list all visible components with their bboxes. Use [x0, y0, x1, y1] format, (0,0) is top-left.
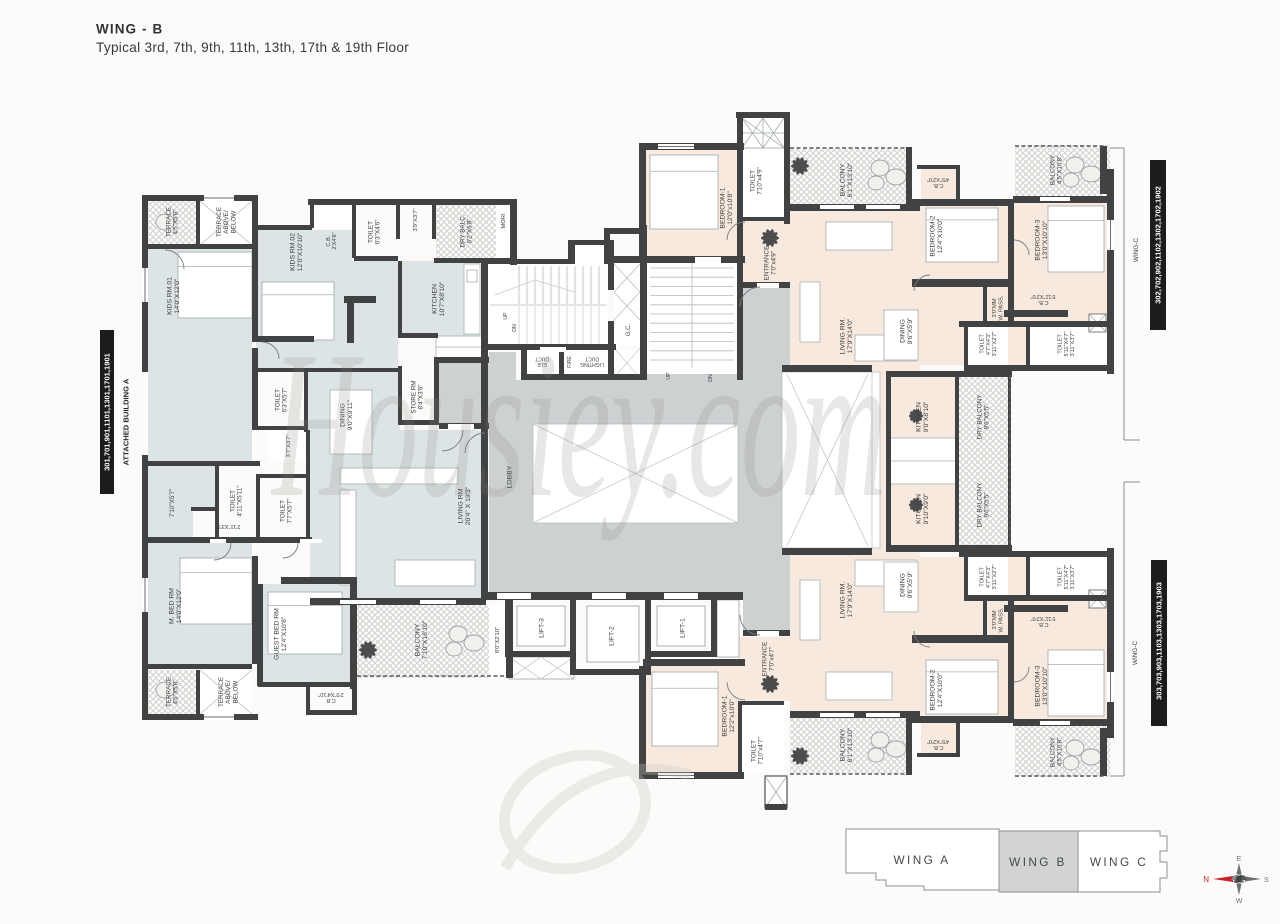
svg-text:BEDROOM-212'4"X10'0": BEDROOM-212'4"X10'0" [930, 215, 945, 256]
svg-text:TOILET4'7"X4'3"3'11"X2'7": TOILET4'7"X4'3"3'11"X2'7" [980, 565, 999, 590]
svg-text:ATTACHED BUILDING A: ATTACHED BUILDING A [122, 378, 131, 465]
svg-text:BALCONY6'1"X13'10": BALCONY6'1"X13'10" [840, 727, 855, 762]
svg-text:BALCONY4'5"X10'8": BALCONY4'5"X10'8" [1050, 736, 1064, 767]
svg-text:302,702,902,1102,1302,1702,190: 302,702,902,1102,1302,1702,1902 [1154, 186, 1163, 304]
svg-text:LIFT-3: LIFT-3 [538, 618, 545, 638]
svg-text:303,703,903,1103,1303,1703,190: 303,703,903,1103,1303,1703,1903 [1155, 582, 1164, 700]
svg-text:TERRACEABOVE/BELOW: TERRACEABOVE/BELOW [218, 677, 239, 707]
svg-text:KIDS RM.0114'0"X12'0": KIDS RM.0114'0"X12'0" [167, 277, 182, 315]
svg-text:KIDS RM.0212'0"X10'10": KIDS RM.0212'0"X10'10" [290, 232, 305, 271]
svg-text:WING A: WING A [893, 853, 950, 867]
svg-text:2'11"X3'9": 2'11"X3'9" [216, 523, 241, 529]
svg-text:BEDROOM-313'0"X10'10": BEDROOM-313'0"X10'10" [1035, 665, 1050, 706]
svg-text:WING C: WING C [1090, 855, 1148, 869]
svg-text:TOILET7'10"x4'7": TOILET7'10"x4'7" [751, 737, 765, 765]
svg-text:DRY BALC.6'2"X6'8": DRY BALC.6'2"X6'8" [460, 214, 474, 247]
svg-text:BALCONY6'1"X13'10": BALCONY6'1"X13'10" [840, 162, 855, 197]
svg-text:TOILET4'11"X5'11": TOILET4'11"X5'11" [230, 485, 244, 516]
svg-text:TOILET5'11"X4'7"3'11"X3'7": TOILET5'11"X4'7"3'11"X3'7" [1058, 565, 1077, 590]
svg-text:TERRACE4'5"X5'8": TERRACE4'5"X5'8" [166, 207, 180, 237]
svg-text:TOILET5'11"X4'7"3'11"X3'7": TOILET5'11"X4'7"3'11"X3'7" [1058, 332, 1077, 357]
svg-text:DINING9'6"X5'9": DINING9'6"X5'9" [900, 317, 915, 345]
svg-text:LIFT-1: LIFT-1 [679, 618, 686, 638]
svg-text:8'0"X2'10": 8'0"X2'10" [495, 627, 501, 653]
svg-text:BEDROOM-112'0"x10'8": BEDROOM-112'0"x10'8" [720, 187, 735, 228]
svg-text:BALCONY4'5"X10'8": BALCONY4'5"X10'8" [1050, 154, 1064, 185]
svg-text:BEDROOM-212'4"X10'0": BEDROOM-212'4"X10'0" [930, 669, 945, 710]
svg-text:TERRACEABOVE/BELOW: TERRACEABOVE/BELOW [216, 207, 237, 237]
svg-text:DINING9'6"X5'9": DINING9'6"X5'9" [900, 571, 915, 599]
svg-text:MORI: MORI [501, 213, 507, 229]
svg-text:3'0"MMW. PASS.: 3'0"MMW. PASS. [992, 607, 1004, 632]
svg-text:BALCONY7'10"X16'10": BALCONY7'10"X16'10" [415, 620, 430, 659]
svg-text:3'9"X3'7": 3'9"X3'7" [413, 208, 419, 231]
svg-text:BEDROOM-112'2"x10'0": BEDROOM-112'2"x10'0" [722, 695, 737, 736]
svg-text:WING B: WING B [1009, 855, 1067, 869]
svg-text:KITCHEN9'0"X8'10": KITCHEN9'0"X8'10" [916, 401, 931, 432]
svg-text:7'10"X5'7": 7'10"X5'7" [169, 489, 176, 518]
svg-text:E: E [1237, 856, 1242, 863]
svg-text:3'0"MMW. PASS.: 3'0"MMW. PASS. [992, 295, 1004, 320]
svg-text:TOILET6'3"X4'6": TOILET6'3"X4'6" [368, 219, 382, 244]
svg-text:W: W [1236, 898, 1243, 905]
svg-text:BEDROOM-313'0"X10'10": BEDROOM-313'0"X10'10" [1035, 219, 1050, 260]
svg-text:LIVING RM.17'9"X14'0": LIVING RM.17'9"X14'0" [840, 582, 855, 619]
svg-text:S: S [1264, 877, 1269, 884]
svg-text:TERRACE4'5"X5'8": TERRACE4'5"X5'8" [166, 677, 180, 707]
svg-text:TOILET4'7"X4'3"3'11"X2'7": TOILET4'7"X4'3"3'11"X2'7" [980, 332, 999, 357]
svg-text:N: N [1203, 875, 1209, 884]
svg-text:WING-C: WING-C [1132, 641, 1139, 666]
svg-text:M. BED RM14'0"X12'0": M. BED RM14'0"X12'0" [169, 588, 184, 624]
svg-text:LIFT-2: LIFT-2 [608, 626, 615, 646]
svg-text:TOILET7'10"x4'9": TOILET7'10"x4'9" [750, 167, 764, 195]
svg-text:WING - B: WING - B [96, 22, 163, 37]
svg-text:KITCHEN9'10"X9'0": KITCHEN9'10"X9'0" [916, 493, 931, 524]
svg-text:301,701,901,1101,1301,1701,190: 301,701,901,1101,1301,1701,1901 [103, 352, 112, 471]
svg-text:WING-C: WING-C [1133, 238, 1140, 263]
svg-text:Typical 3rd, 7th, 9th, 11th, 1: Typical 3rd, 7th, 9th, 11th, 13th, 17th … [96, 40, 409, 55]
svg-text:Housiey.com: Housiey.com [271, 308, 887, 540]
